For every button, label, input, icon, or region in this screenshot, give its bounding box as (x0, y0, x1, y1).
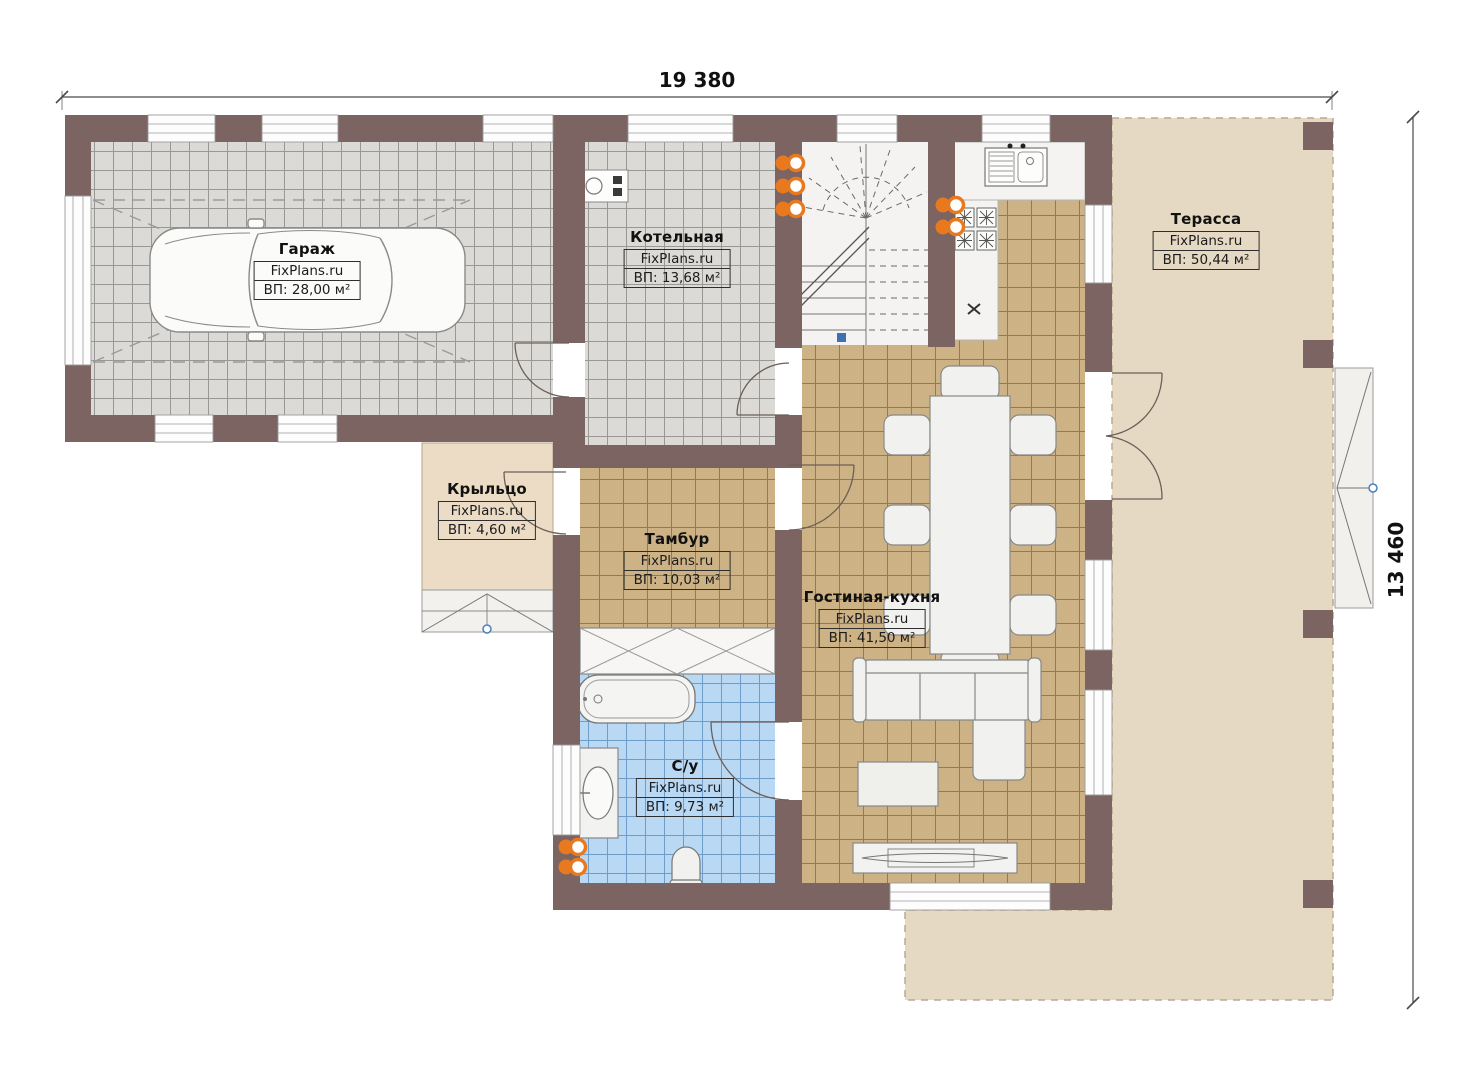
tv-stand (853, 843, 1017, 873)
dining-table (930, 396, 1010, 654)
room-name: Гараж (254, 240, 361, 258)
room-area: ВП: 9,73 м² (637, 797, 733, 816)
room-area: ВП: 41,50 м² (820, 628, 925, 647)
room-brand: FixPlans.ru (255, 262, 360, 280)
terrace-column (1303, 610, 1333, 638)
room-brand: FixPlans.ru (625, 552, 730, 570)
room-name: Терасса (1153, 210, 1260, 228)
terrace-steps (1335, 368, 1377, 608)
step-marker-dot (1369, 484, 1377, 492)
chair (884, 505, 930, 545)
room-label-porch: Крыльцо FixPlans.ru ВП: 4,60 м² (438, 480, 536, 540)
chair (1010, 415, 1056, 455)
bathtub (578, 675, 695, 723)
wardrobe (580, 628, 775, 674)
room-brand: FixPlans.ru (625, 250, 730, 268)
room-name: Тамбур (624, 530, 731, 548)
kitchen-sink (985, 144, 1047, 187)
dimension-height-label: 13 460 (1384, 522, 1408, 599)
room-name: Крыльцо (438, 480, 536, 498)
radiator-icon (776, 156, 804, 217)
room-brand: FixPlans.ru (439, 502, 535, 520)
room-brand: FixPlans.ru (637, 779, 733, 797)
terrace-column (1303, 340, 1333, 368)
room-area: ВП: 10,03 м² (625, 570, 730, 589)
porch-steps (422, 590, 553, 633)
room-brand: FixPlans.ru (1154, 232, 1259, 250)
room-area: ВП: 4,60 м² (439, 520, 535, 539)
room-name: С/у (636, 757, 734, 775)
room-label-bathroom: С/у FixPlans.ru ВП: 9,73 м² (636, 757, 734, 817)
room-area: ВП: 28,00 м² (255, 280, 360, 299)
floor-plan-drawing (0, 0, 1474, 1080)
chair (884, 415, 930, 455)
chair (1010, 505, 1056, 545)
coffee-table (858, 762, 938, 806)
floor-plan: 19 380 13 460 Гараж FixPlans.ru ВП: 28,0… (0, 0, 1474, 1080)
boiler-unit (580, 170, 628, 202)
room-label-living: Гостиная-кухня FixPlans.ru ВП: 41,50 м² (804, 588, 941, 648)
vanity-sink (578, 748, 618, 838)
garage-gate (65, 196, 91, 365)
room-label-vestibule: Тамбур FixPlans.ru ВП: 10,03 м² (624, 530, 731, 590)
room-brand: FixPlans.ru (820, 610, 925, 628)
room-area: ВП: 50,44 м² (1154, 250, 1259, 269)
terrace-column (1303, 122, 1333, 150)
room-label-terrace: Терасса FixPlans.ru ВП: 50,44 м² (1153, 210, 1260, 270)
dimension-width-label: 19 380 (659, 68, 736, 92)
room-name: Котельная (624, 228, 731, 246)
room-name: Гостиная-кухня (804, 588, 941, 606)
chair (1010, 595, 1056, 635)
step-marker-dot (483, 625, 491, 633)
stair-marker (837, 333, 846, 342)
chair (941, 366, 999, 400)
room-label-garage: Гараж FixPlans.ru ВП: 28,00 м² (254, 240, 361, 300)
room-label-boiler: Котельная FixPlans.ru ВП: 13,68 м² (624, 228, 731, 288)
terrace-column (1303, 880, 1333, 908)
room-area: ВП: 13,68 м² (625, 268, 730, 287)
